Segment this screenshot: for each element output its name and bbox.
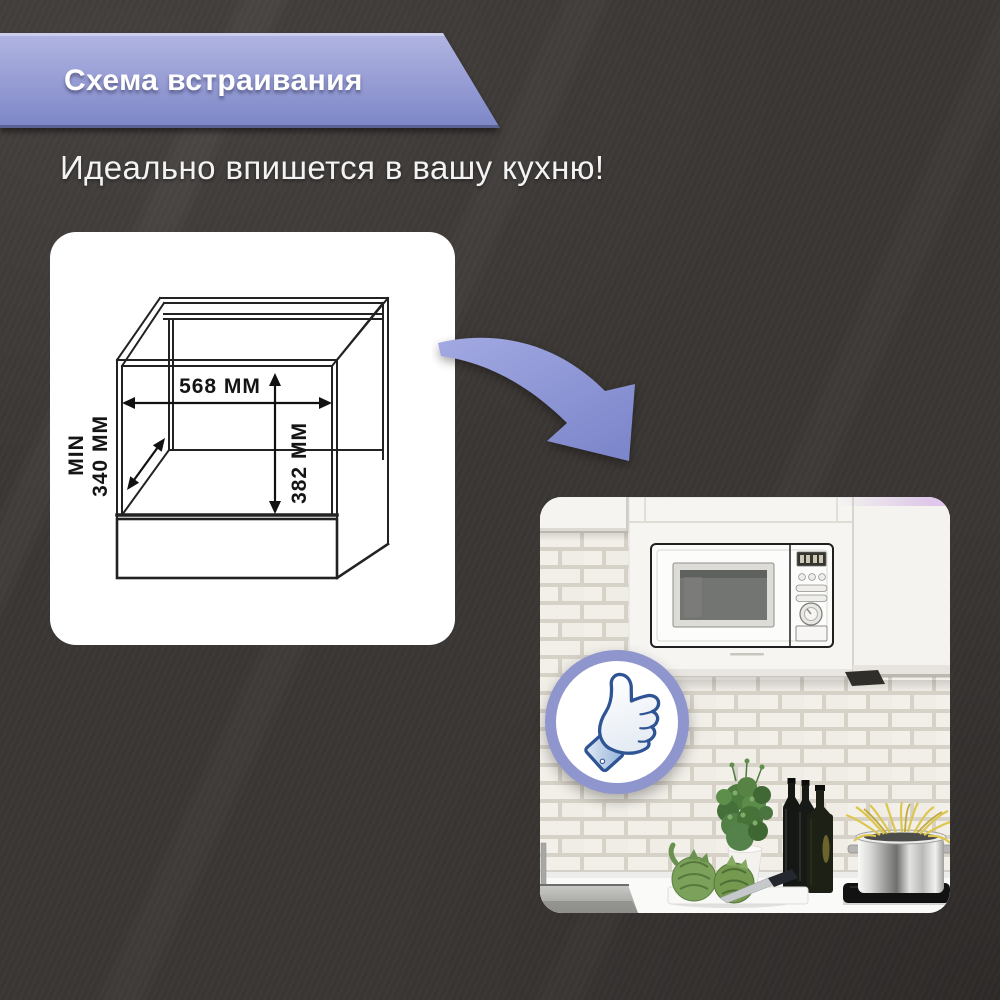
microwave-window [673,563,774,627]
depth-min-label: MIN [65,434,88,476]
door-open-button [796,626,827,641]
hood-vent [845,670,885,686]
height-dimension-label: 382 MM [288,422,311,504]
height-dimension-arrow [269,373,281,514]
banner-title: Схема встраивания [64,33,363,128]
curved-arrow-icon [432,330,657,470]
subtitle-text: Идеально впишется в вашу кухню! [60,149,604,187]
cabinet-outline [117,298,388,578]
microwave-display [797,552,826,566]
promo-slide: Схема встраивания Идеально впишется в ва… [0,0,1000,1000]
cabinet-diagram-svg: 568 MM 382 MM MIN 340 MM [50,232,455,645]
microwave-knob [800,603,822,625]
brand-mark [730,653,764,656]
width-dimension-arrow [122,397,332,409]
installation-diagram-card: 568 MM 382 MM MIN 340 MM [50,232,455,645]
like-badge [545,650,689,794]
header-banner-shape: Схема встраивания [0,33,500,128]
microwave [651,544,833,656]
light-glare [835,497,950,506]
thumbs-up-icon [562,667,672,777]
width-dimension-label: 568 MM [179,375,261,398]
depth-value-label: 340 MM [89,415,112,497]
header-banner: Схема встраивания [0,33,500,128]
microwave-buttons [796,574,827,602]
